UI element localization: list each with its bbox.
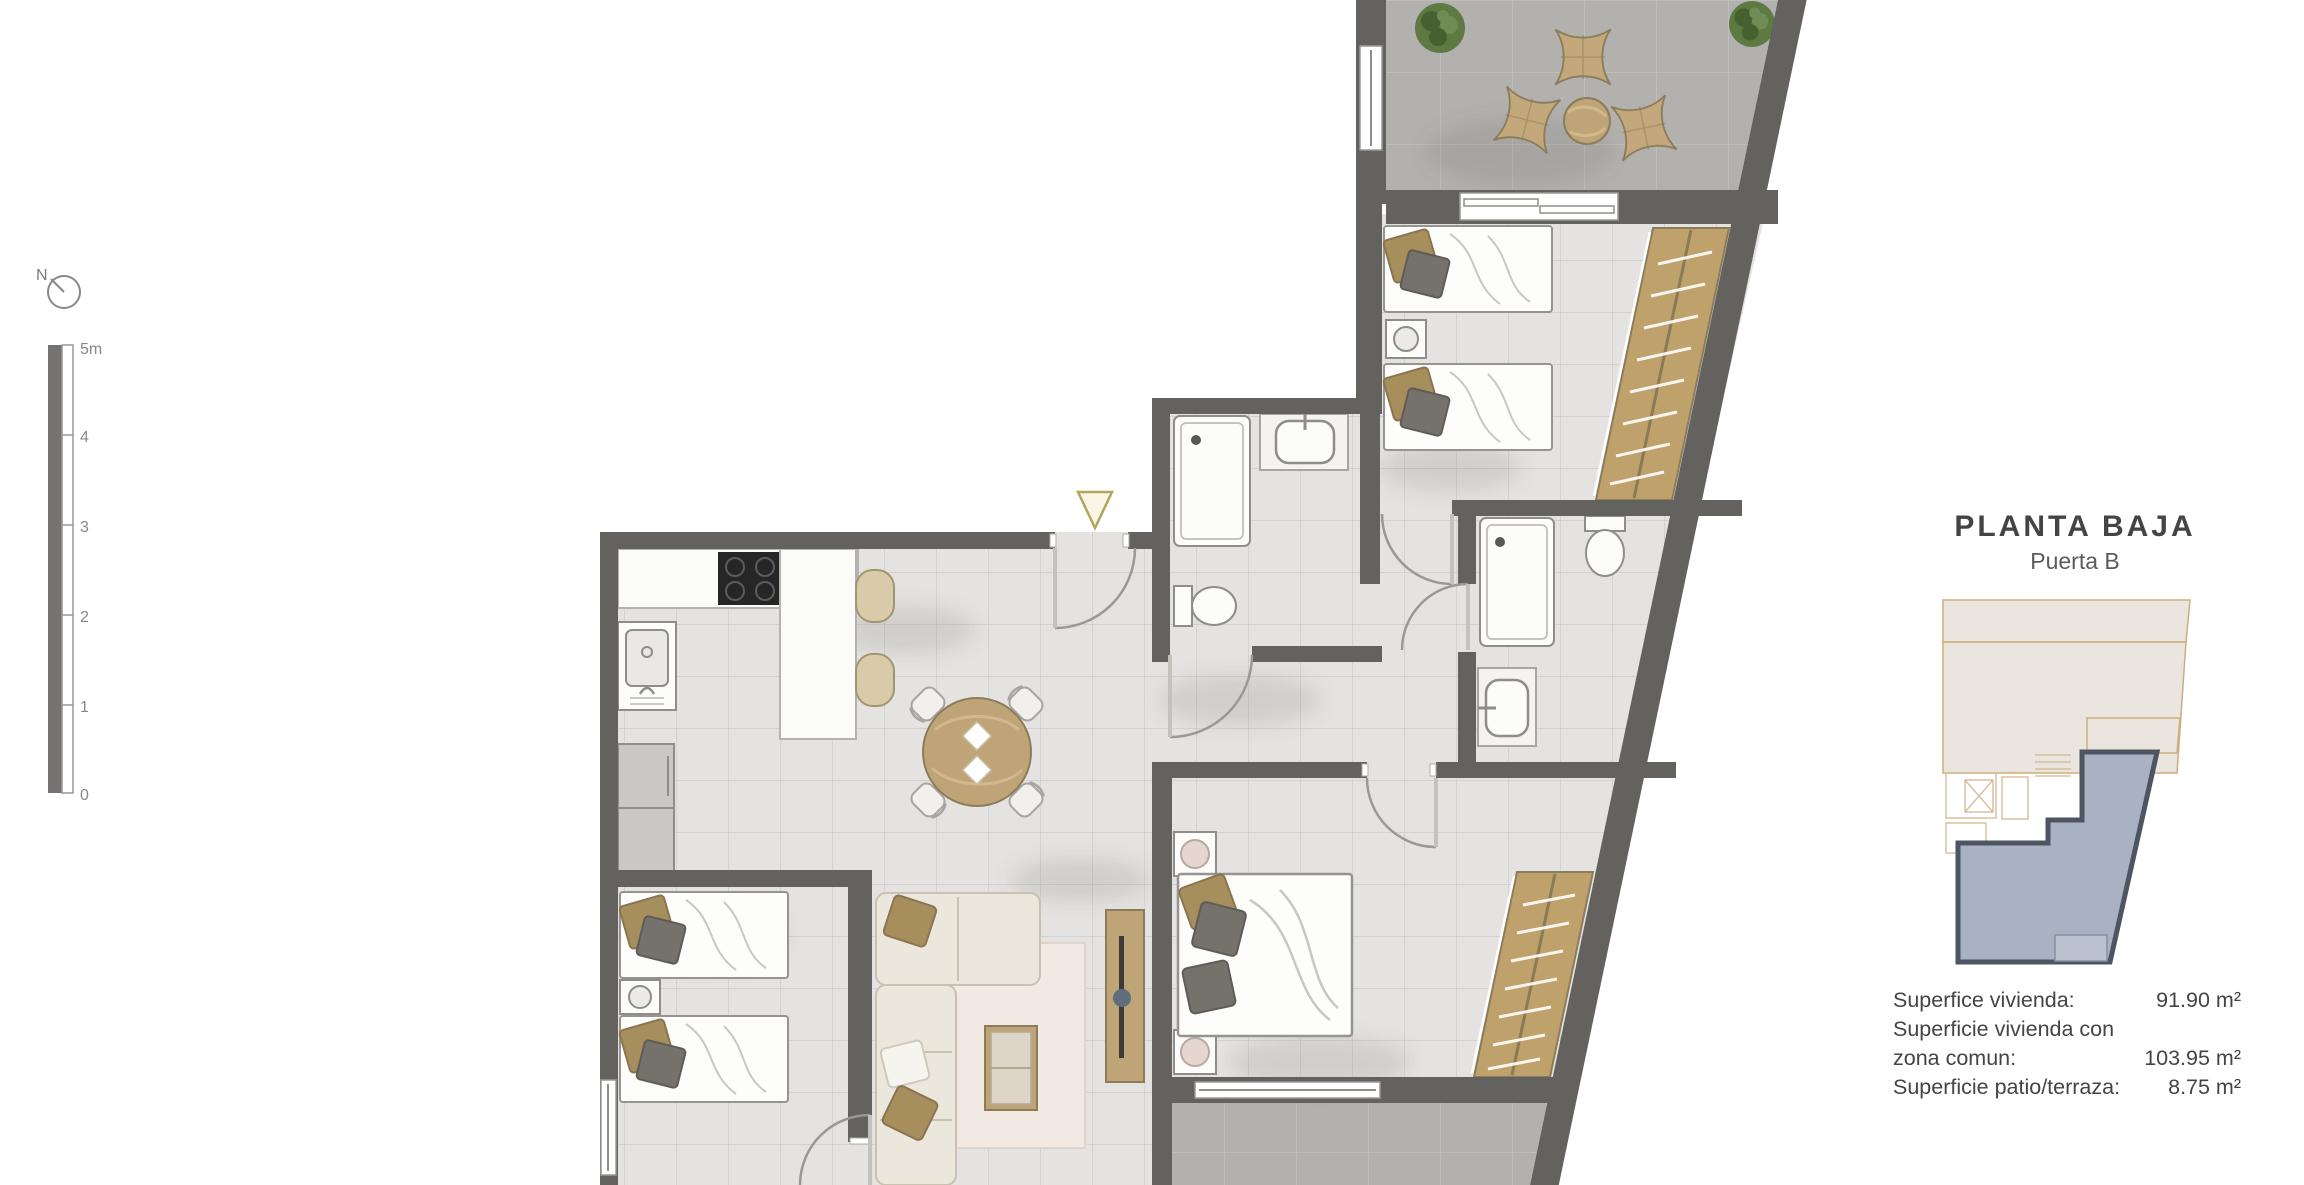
dining-area (906, 682, 1048, 822)
page-subtitle: Puerta B (1900, 548, 2250, 575)
area-label: Superfice vivienda: (1893, 986, 2156, 1015)
area-row: zona comun: 103.95 m² (1893, 1044, 2241, 1073)
key-plan (1940, 595, 2200, 980)
toilet (1585, 516, 1625, 576)
bed (1383, 364, 1552, 450)
svg-text:3: 3 (80, 519, 89, 536)
area-value: 91.90 m² (2156, 986, 2241, 1015)
bed (1383, 226, 1552, 312)
side-table (1181, 1038, 1209, 1066)
coffee-table (985, 1026, 1037, 1110)
fridge (618, 744, 674, 874)
scale-bar: 5m 4 3 2 1 0 (48, 341, 102, 804)
shower-tray (1174, 416, 1250, 546)
dining-table (923, 698, 1031, 806)
terrace-chair (1555, 29, 1610, 84)
area-row: Superficie patio/terraza: 8.75 m² (1893, 1073, 2241, 1102)
side-table (1181, 840, 1209, 868)
area-row: Superficie vivienda con (1893, 1015, 2241, 1044)
stool (856, 570, 894, 622)
master-window (1195, 1082, 1380, 1098)
svg-text:0: 0 (80, 787, 89, 804)
keyplan-unit-highlight (1958, 752, 2157, 962)
tv-cabinet (1106, 910, 1144, 1082)
double-bed (1178, 873, 1352, 1036)
area-row: Superfice vivienda: 91.90 m² (1893, 986, 2241, 1015)
lamp (1394, 327, 1418, 351)
svg-text:5m: 5m (80, 341, 102, 358)
area-label: zona comun: (1893, 1044, 2144, 1073)
entrance-marker-icon (1078, 492, 1112, 528)
patio-floor (1172, 1103, 1552, 1185)
kitchen-island (780, 549, 856, 739)
terrace-table (1564, 98, 1610, 144)
sofa-pillow (880, 1040, 930, 1089)
keyplan-parcel (1943, 600, 2190, 642)
bed (619, 892, 788, 978)
floorplan-page: N 5m 4 3 2 1 0 PLANTA BAJA Puerta B (0, 0, 2304, 1185)
area-label: Superficie vivienda con (1893, 1015, 2241, 1044)
north-arrow: N (36, 267, 80, 308)
lamp (629, 986, 651, 1008)
kitchen-sink (618, 622, 676, 710)
terrace-window (1360, 46, 1382, 150)
svg-text:2: 2 (80, 609, 89, 626)
area-summary: Superfice vivienda: 91.90 m² Superficie … (1893, 986, 2241, 1102)
svg-text:4: 4 (80, 429, 89, 446)
area-label: Superficie patio/terraza: (1893, 1073, 2168, 1102)
plant-icon (1415, 3, 1465, 53)
page-title: PLANTA BAJA (1900, 510, 2250, 544)
shower-drain (1495, 537, 1505, 547)
area-value: 8.75 m² (2168, 1073, 2241, 1102)
bedroom2-window (601, 1080, 616, 1175)
keyplan-unit-notch (2055, 935, 2107, 961)
keyplan-parcel (2087, 718, 2180, 753)
plant-icon (1729, 1, 1775, 47)
stool (856, 654, 894, 706)
bedroom1-sliding-door (1460, 193, 1618, 220)
svg-text:1: 1 (80, 699, 89, 716)
area-value: 103.95 m² (2144, 1044, 2241, 1073)
compass-label: N (36, 267, 48, 284)
shower-drain (1191, 435, 1201, 445)
shower-tray (1480, 518, 1554, 646)
bed (619, 1016, 788, 1102)
toilet (1174, 586, 1236, 626)
